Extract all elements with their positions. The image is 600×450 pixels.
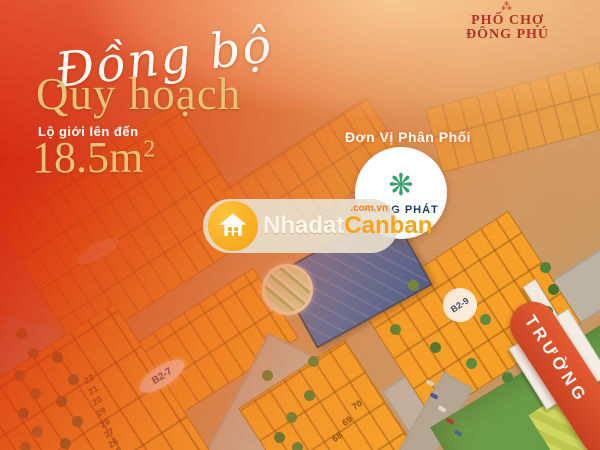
ad-poster: 22 21 20 29 28 27 26 25 70 69 68 B2-7 B2…: [0, 0, 600, 450]
trees: [16, 328, 27, 339]
project-name-line2: ĐÔNG PHÚ: [440, 28, 575, 43]
watermark-pill: NhadatCanban .com.vn: [203, 199, 398, 253]
house-icon-svg: [218, 211, 248, 241]
siteplan-inset-circle: [262, 264, 313, 315]
house-icon: [208, 201, 258, 251]
trees: [52, 352, 63, 363]
road-width-number: 18.5m: [32, 133, 143, 182]
block-badge: B2-9: [443, 288, 477, 322]
flower-emblem-icon: ❋: [388, 171, 413, 201]
project-logo: ⁂ PHỐ CHỢ ĐÔNG PHÚ: [440, 2, 575, 43]
headline-main: Quy hoạch: [36, 68, 241, 120]
watermark-domain: .com.vn: [350, 203, 388, 214]
watermark-brand: NhadatCanban: [263, 212, 432, 240]
watermark-brand-part2: Canban: [344, 212, 432, 239]
watermark-brand-part1: Nhadat: [263, 212, 344, 239]
plot-block: [425, 57, 600, 173]
block-badge-label: B2-9: [449, 295, 471, 314]
distributor-label: Đơn Vị Phân Phối: [345, 129, 471, 145]
trees: [408, 280, 419, 291]
project-emblem-icon: ⁂: [440, 2, 575, 14]
road-width-sup: 2: [143, 135, 155, 162]
trees: [262, 370, 273, 381]
trees: [540, 262, 551, 273]
road-width-value: 18.5m2: [32, 132, 155, 183]
